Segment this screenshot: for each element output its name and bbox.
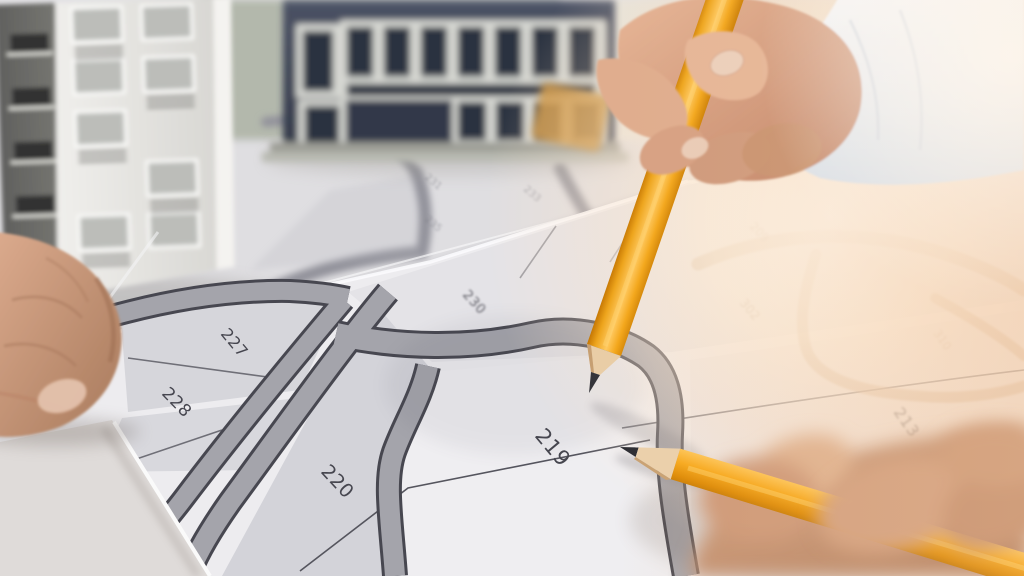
scene-canvas: 231 233 222 235 — [0, 0, 1024, 576]
warm-wash-over — [0, 0, 1024, 576]
photo-scene: 231 233 222 235 — [0, 0, 1024, 576]
